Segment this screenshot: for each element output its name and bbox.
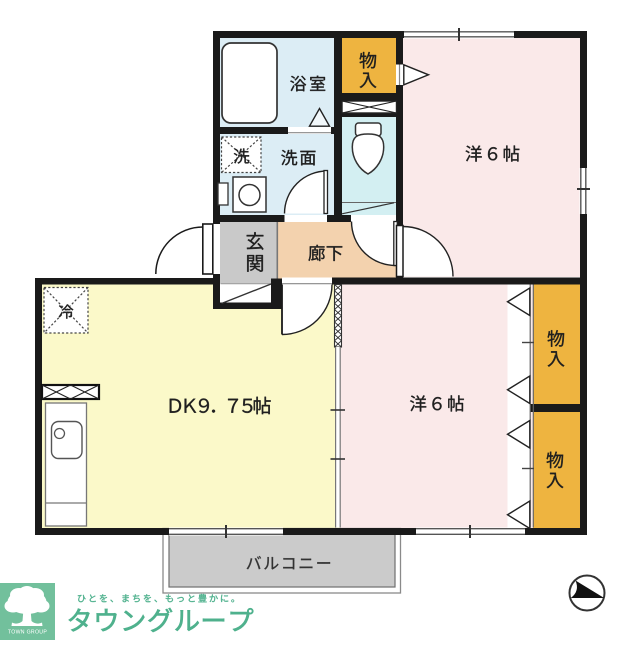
svg-text:TOWN GROUP: TOWN GROUP <box>8 630 47 636</box>
